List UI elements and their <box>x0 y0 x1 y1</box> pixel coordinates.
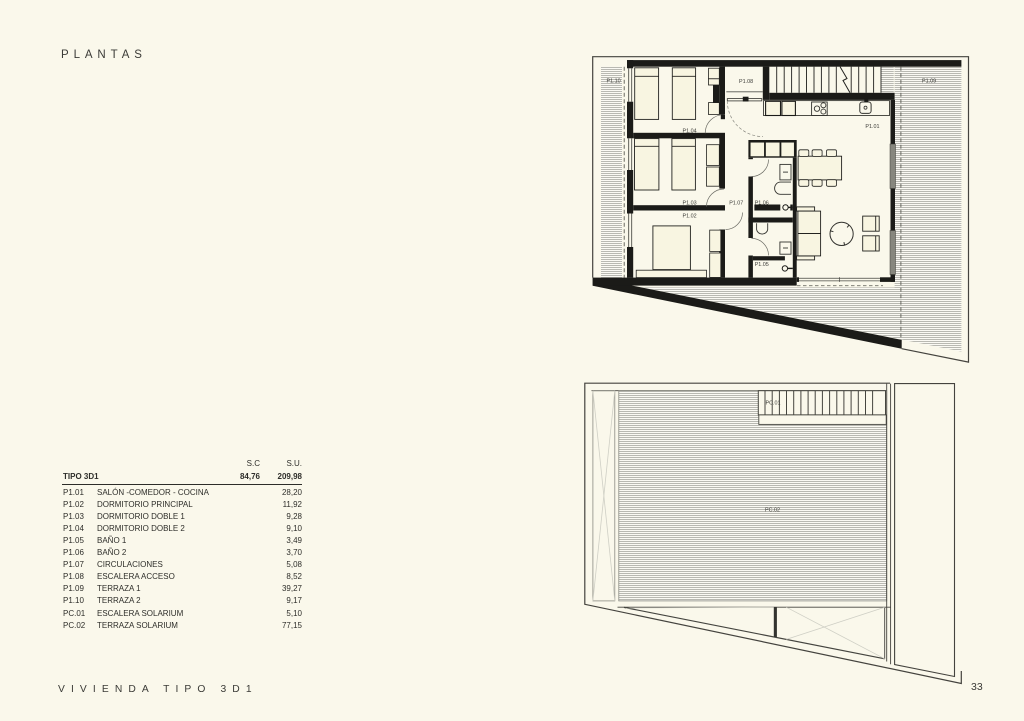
svg-text:P1.02: P1.02 <box>683 214 697 220</box>
svg-text:P1.08: P1.08 <box>739 79 753 85</box>
svg-text:PC.01: PC.01 <box>766 400 781 406</box>
svg-text:P1.03: P1.03 <box>683 200 697 206</box>
svg-text:P1.04: P1.04 <box>683 128 697 134</box>
svg-text:PC.02: PC.02 <box>765 508 780 514</box>
svg-text:P1.05: P1.05 <box>755 262 769 268</box>
svg-text:P1.01: P1.01 <box>865 124 879 130</box>
svg-text:P1.09: P1.09 <box>922 78 936 84</box>
svg-text:P1.10: P1.10 <box>607 79 621 85</box>
svg-text:P1.07: P1.07 <box>729 200 743 206</box>
svg-text:P1.06: P1.06 <box>755 200 769 206</box>
